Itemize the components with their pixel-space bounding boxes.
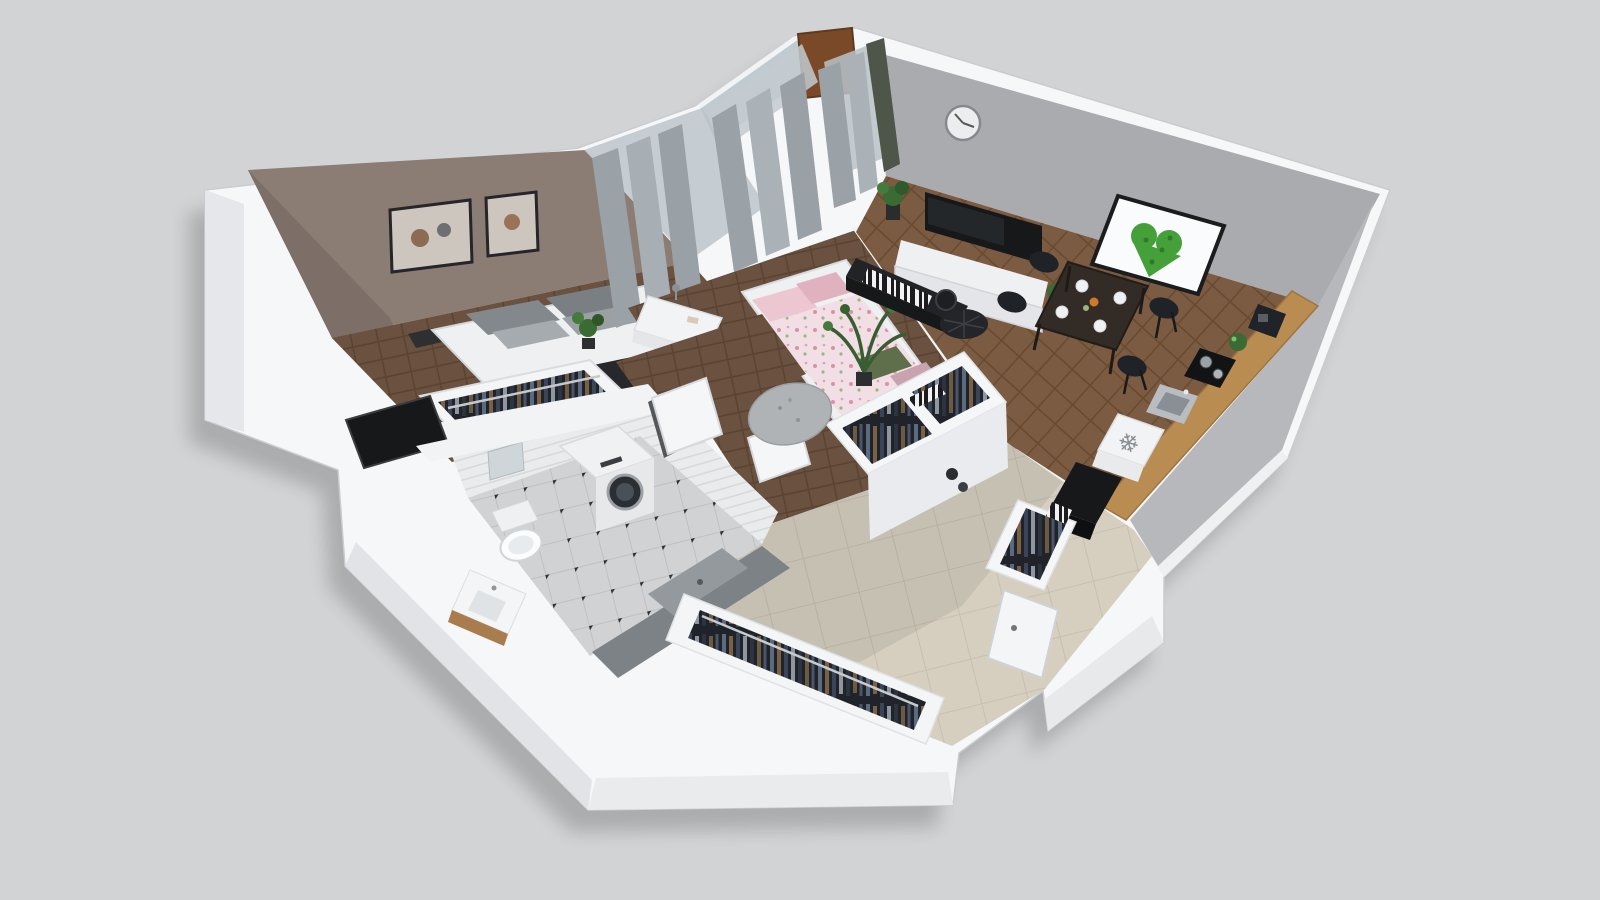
- plant-pot-left: [886, 204, 900, 220]
- wall-clock: [946, 106, 980, 140]
- moss-speckle-4: [1150, 260, 1155, 265]
- plate-2: [1114, 292, 1126, 304]
- rug-speckle-3: [788, 398, 792, 402]
- plant-pot: [582, 338, 595, 349]
- shell-face-left: [205, 190, 244, 432]
- decor-vase-2: [958, 482, 968, 492]
- plate-1: [1076, 280, 1088, 292]
- moss-speckle-1: [1144, 238, 1149, 243]
- fruit-bowl: [1090, 298, 1099, 307]
- table-greens: [1083, 305, 1089, 311]
- rug-speckle-1: [778, 406, 782, 410]
- coffee-machine-detail: [1258, 314, 1268, 322]
- plant-left-foliage2: [895, 181, 909, 195]
- decor-vase-1: [946, 468, 958, 480]
- palm-leaf2: [840, 304, 850, 314]
- faucet: [1184, 390, 1189, 395]
- herb-leaf: [1232, 337, 1237, 342]
- wall-art-1-motif2: [437, 223, 451, 237]
- plate-3: [1056, 306, 1068, 318]
- plate-4: [1094, 320, 1106, 332]
- moss-speckle-3: [1168, 236, 1173, 241]
- herb-bowl: [1229, 333, 1247, 351]
- floorplan-render: ❄: [0, 0, 1600, 900]
- pot-1: [1200, 356, 1212, 368]
- palm-pot: [856, 372, 872, 386]
- floorplan-svg: ❄: [0, 0, 1600, 900]
- plant-foliage3: [572, 312, 584, 324]
- wall-art-1-motif: [411, 229, 429, 247]
- plant-left-foliage3: [877, 182, 889, 194]
- pouf: [940, 309, 988, 339]
- desk-lamp: [672, 284, 680, 292]
- washer-drum: [616, 483, 634, 501]
- vanity-faucet: [492, 586, 497, 591]
- wall-art-2-motif: [504, 214, 520, 230]
- plant-foliage2: [592, 314, 604, 326]
- moss-speckle-2: [1160, 248, 1165, 253]
- pot-2: [1213, 369, 1223, 379]
- wall-art-frame-1: [390, 200, 472, 272]
- shell-face-bottom: [588, 772, 953, 810]
- table-lamp: [936, 290, 956, 310]
- palm-leaf1: [823, 321, 833, 331]
- rug-speckle-2: [796, 418, 800, 422]
- shower-drain: [697, 579, 703, 585]
- entry-door-handle: [1011, 625, 1017, 631]
